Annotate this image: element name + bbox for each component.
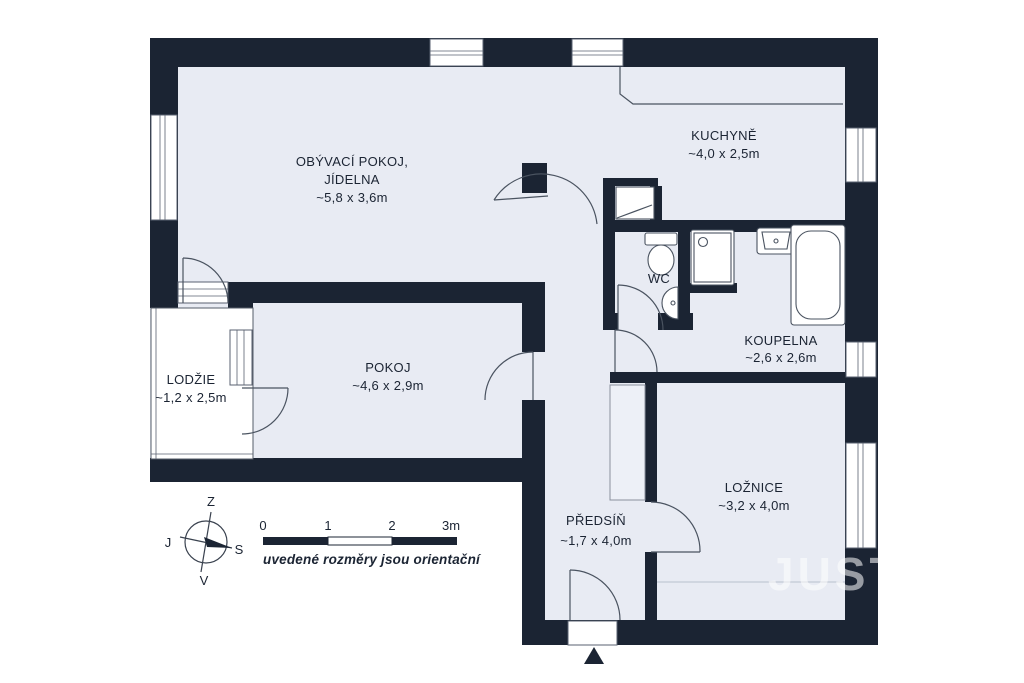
window-right-bathroom <box>846 342 876 377</box>
bedroom-dims: ~3,2 x 4,0m <box>718 498 790 513</box>
loggia-dims: ~1,2 x 2,5m <box>155 390 227 405</box>
bedroom-label: LOŽNICE <box>725 480 783 495</box>
justo-watermark: JUSTO <box>768 548 941 600</box>
loggia-label: LODŽIE <box>167 372 216 387</box>
pokoj-label: POKOJ <box>365 360 411 375</box>
living-room-label: OBÝVACÍ POKOJ, <box>296 154 408 169</box>
entrance-arrow-icon <box>584 647 604 664</box>
hallway-dims: ~1,7 x 4,0m <box>560 533 632 548</box>
scale-tick-0: 0 <box>259 518 266 533</box>
scale-segment-2 <box>328 537 392 545</box>
wall-bedroom-left-upper <box>645 383 657 502</box>
pokoj-dims: ~4,6 x 2,9m <box>352 378 424 393</box>
hallway-wardrobe <box>610 385 645 500</box>
toilet-icon <box>645 233 677 275</box>
wc-label: WC <box>648 271 670 286</box>
window-right-bedroom <box>846 443 876 548</box>
compass-rose: Z J S V <box>165 494 244 588</box>
entrance-door-gap <box>568 621 617 645</box>
wall-wc-right <box>678 232 690 315</box>
wall-nook-top <box>603 178 658 186</box>
compass-label-v: V <box>200 573 209 588</box>
bathtub-icon <box>791 225 845 325</box>
window-right-kitchen <box>846 128 876 182</box>
kitchen-dims: ~4,0 x 2,5m <box>688 146 760 161</box>
nook-appliance-icon <box>616 187 654 219</box>
scale-tick-2: 2 <box>388 518 395 533</box>
window-top-kitchen <box>572 39 623 66</box>
hallway-label: PŘEDSÍŇ <box>566 513 626 528</box>
wall-wc-bottom-left-stub <box>603 313 618 330</box>
scale-tick-1: 1 <box>324 518 331 533</box>
wall-living-room-divider <box>228 282 522 303</box>
scale-segment-3 <box>392 537 457 545</box>
wall-bedroom-left-lower <box>645 552 657 620</box>
scale-bar: 0 1 2 3m uvedené rozměry jsou orientační <box>259 518 482 567</box>
wall-hallway-left <box>522 282 545 620</box>
living-room-label2: JÍDELNA <box>324 172 380 187</box>
wall-top <box>150 38 878 67</box>
compass-needle <box>204 537 232 548</box>
floorplan-svg: OBÝVACÍ POKOJ, JÍDELNA ~5,8 x 3,6m KUCHY… <box>0 0 1024 683</box>
scale-segment-1 <box>263 537 328 545</box>
dimensions-disclaimer: uvedené rozměry jsou orientační <box>263 552 482 567</box>
bathroom-dims: ~2,6 x 2,6m <box>745 350 817 365</box>
compass-label-j: J <box>165 535 172 550</box>
wall-wc-left <box>603 178 615 330</box>
wall-bottom-left-block <box>150 458 545 482</box>
window-left-living <box>151 115 177 220</box>
kitchen-label: KUCHYNĚ <box>691 128 757 143</box>
floorplan-canvas: OBÝVACÍ POKOJ, JÍDELNA ~5,8 x 3,6m KUCHY… <box>0 0 1024 683</box>
wall-bedroom-top <box>610 372 845 383</box>
compass-label-s: S <box>235 542 244 557</box>
bath-sink-icon <box>757 228 795 254</box>
scale-tick-3m: 3m <box>442 518 460 533</box>
compass-label-z: Z <box>207 494 215 509</box>
wall-living-door-stub <box>522 163 547 193</box>
bathroom-label: KOUPELNA <box>744 333 817 348</box>
living-room-dims: ~5,8 x 3,6m <box>316 190 388 205</box>
washing-machine-icon <box>691 230 734 285</box>
window-top-living <box>430 39 483 66</box>
